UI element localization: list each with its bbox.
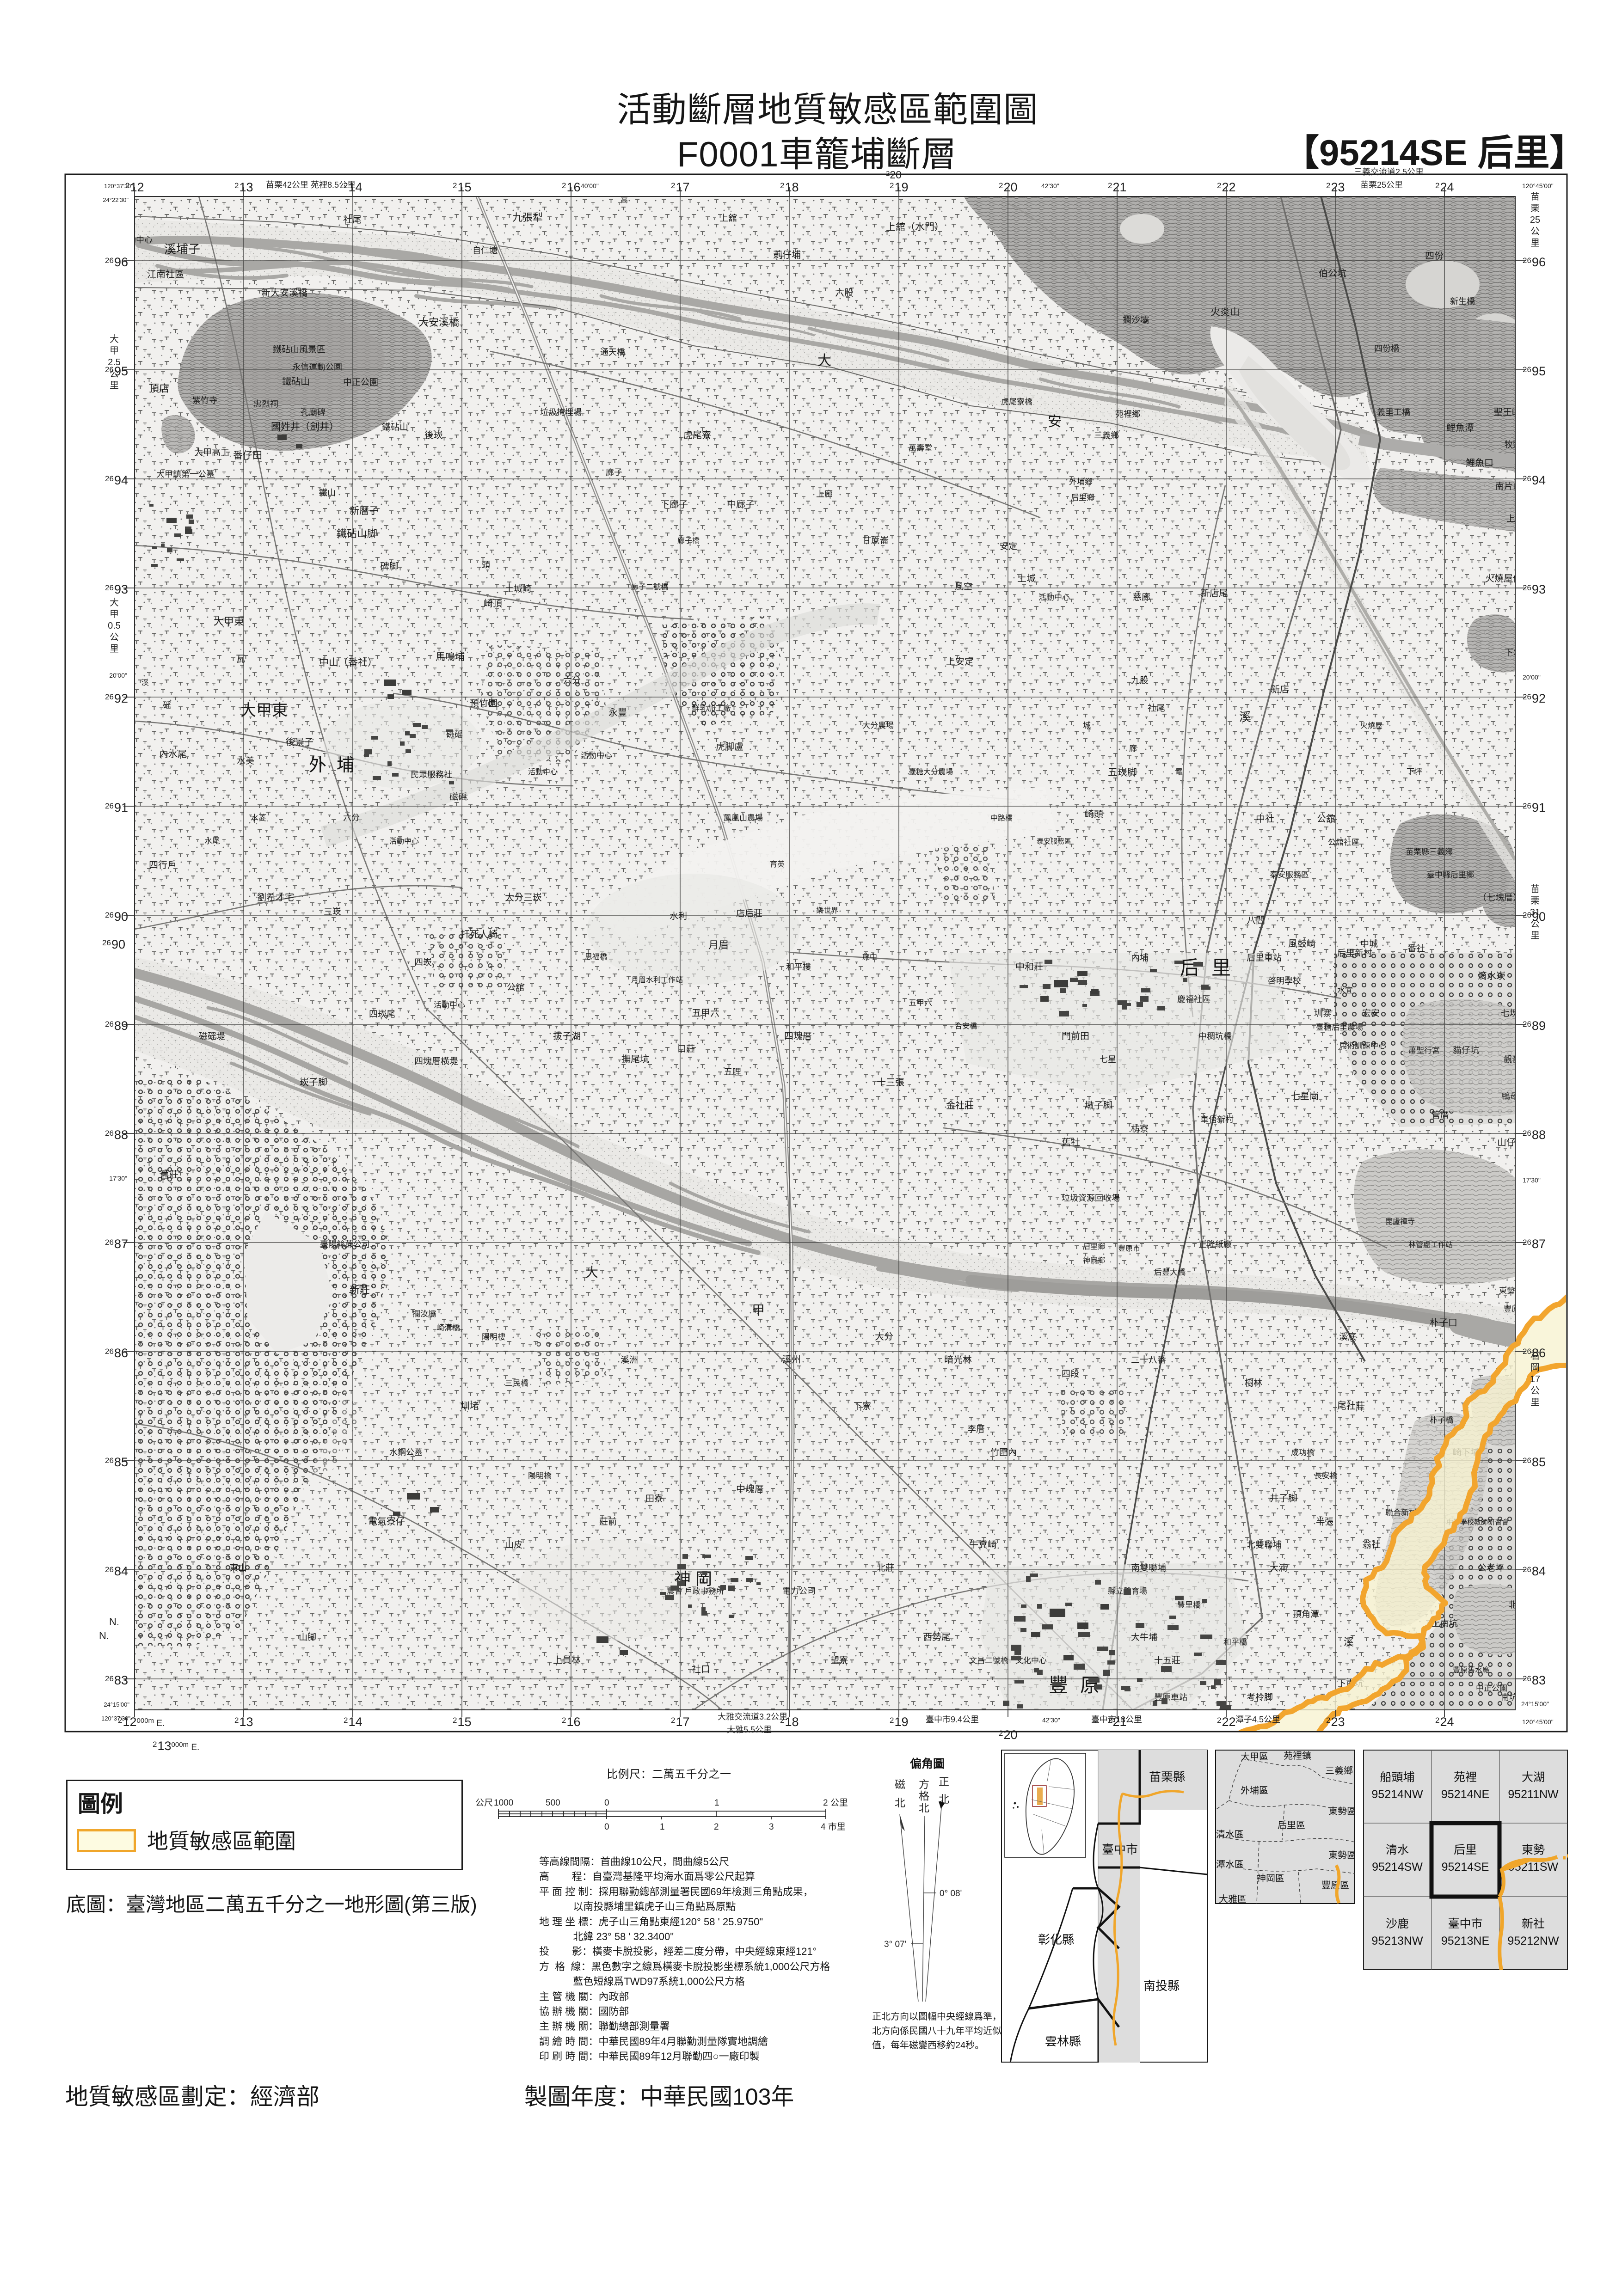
svg-text:1000: 1000 <box>494 1798 513 1808</box>
svg-text:撫尾坑: 撫尾坑 <box>621 1054 649 1065</box>
svg-text:林管處工作站: 林管處工作站 <box>1408 1241 1453 1249</box>
svg-text:自仁塘: 自仁塘 <box>473 246 498 255</box>
svg-text:大雅區: 大雅區 <box>1219 1894 1247 1904</box>
svg-text:馬鳴埔: 馬鳴埔 <box>436 652 465 662</box>
svg-text:2686: 2686 <box>105 1346 128 1360</box>
svg-text:磁: 磁 <box>895 1778 905 1790</box>
svg-text:合安橋: 合安橋 <box>955 1022 977 1030</box>
svg-text:莿仔埔: 莿仔埔 <box>773 250 801 260</box>
svg-text:水尾: 水尾 <box>204 837 220 845</box>
svg-text:舊社: 舊社 <box>1062 1137 1080 1148</box>
svg-text:公老坪: 公老坪 <box>1478 1563 1504 1573</box>
svg-text:水宜: 水宜 <box>1337 986 1353 995</box>
svg-text:臺中市: 臺中市 <box>1448 1917 1482 1930</box>
svg-text:孔廟碑: 孔廟碑 <box>301 408 326 417</box>
svg-text:四行戶: 四行戶 <box>149 860 177 870</box>
svg-text:三義鄉: 三義鄉 <box>1094 431 1119 440</box>
svg-text:西勢尾: 西勢尾 <box>923 1632 951 1642</box>
svg-text:育英: 育英 <box>770 860 785 869</box>
svg-text:豐原區: 豐原區 <box>1321 1880 1349 1891</box>
svg-text:溪: 溪 <box>1344 1636 1354 1648</box>
svg-text:店后莊: 店后莊 <box>736 908 762 918</box>
svg-text:東勢區: 東勢區 <box>1328 1850 1355 1861</box>
svg-text:后里車站: 后里車站 <box>1247 953 1282 963</box>
svg-text:望寮: 望寮 <box>830 1655 848 1665</box>
svg-text:220: 220 <box>886 169 902 181</box>
svg-text:火燒屋: 火燒屋 <box>1360 722 1382 730</box>
svg-text:新曆子: 新曆子 <box>350 506 379 516</box>
svg-text:五崁脚: 五崁脚 <box>1108 767 1137 778</box>
svg-text:泰安服務區: 泰安服務區 <box>1037 838 1071 845</box>
svg-text:2691: 2691 <box>1523 801 1546 814</box>
svg-text:山脚: 山脚 <box>299 1632 316 1642</box>
svg-text:上廊: 上廊 <box>816 490 833 499</box>
svg-text:竹圍內: 竹圍內 <box>990 1447 1017 1457</box>
svg-text:土城: 土城 <box>1017 573 1036 584</box>
svg-text:2689: 2689 <box>1523 1019 1546 1033</box>
svg-text:后豐大橋: 后豐大橋 <box>1154 1268 1186 1277</box>
svg-text:2687: 2687 <box>105 1237 128 1251</box>
svg-text:扞死人崎: 扞死人崎 <box>461 929 498 940</box>
svg-text:中廊子: 中廊子 <box>727 499 755 510</box>
svg-text:大雅交流道3.2公里: 大雅交流道3.2公里 <box>718 1712 787 1721</box>
svg-text:北: 北 <box>919 1802 929 1814</box>
svg-text:苑裡鄉: 苑裡鄉 <box>1115 410 1140 419</box>
svg-text:95214SE: 95214SE <box>1442 1861 1489 1874</box>
svg-text:文昌二號橋: 文昌二號橋 <box>969 1656 1008 1665</box>
svg-text:0: 0 <box>604 1798 609 1808</box>
svg-text:水鋼公墓: 水鋼公墓 <box>389 1448 423 1457</box>
svg-text:溪: 溪 <box>141 679 149 687</box>
svg-text:劉希才宅: 劉希才宅 <box>257 892 294 903</box>
svg-text:1: 1 <box>660 1822 665 1832</box>
svg-text:公尺: 公尺 <box>475 1798 493 1808</box>
svg-text:六分: 六分 <box>563 675 581 686</box>
svg-text:苗栗25公里: 苗栗25公里 <box>1530 191 1540 248</box>
svg-text:和平橋: 和平橋 <box>1223 1638 1247 1647</box>
svg-text:中正公園: 中正公園 <box>343 377 378 387</box>
svg-text:溪洲: 溪洲 <box>621 1355 638 1365</box>
svg-text:苗栗縣: 苗栗縣 <box>1149 1770 1185 1784</box>
svg-text:神岡區: 神岡區 <box>1257 1873 1284 1884</box>
svg-text:風鼓崎: 風鼓崎 <box>1288 938 1316 949</box>
svg-text:預竹園: 預竹園 <box>470 698 498 709</box>
svg-text:大甲2.5公里: 大甲2.5公里 <box>108 334 121 391</box>
svg-text:2692: 2692 <box>1523 692 1546 705</box>
svg-text:方: 方 <box>919 1778 929 1790</box>
svg-text:南投縣: 南投縣 <box>1143 1979 1180 1993</box>
svg-text:社口: 社口 <box>692 1664 710 1675</box>
svg-text:24°15'00": 24°15'00" <box>104 1701 129 1708</box>
svg-text:95213NW: 95213NW <box>1371 1935 1423 1947</box>
svg-text:42'30": 42'30" <box>1042 1716 1060 1724</box>
svg-text:鐵砧山: 鐵砧山 <box>382 422 408 432</box>
svg-text:朴子口: 朴子口 <box>1430 1317 1457 1328</box>
svg-text:苗栗25公里: 苗栗25公里 <box>1360 180 1403 190</box>
svg-text:3: 3 <box>769 1822 774 1832</box>
svg-text:新社: 新社 <box>1522 1917 1545 1930</box>
svg-text:下寮: 下寮 <box>854 1401 871 1411</box>
svg-text:東勢鎮: 東勢鎮 <box>1499 1286 1523 1295</box>
svg-text:金社莊: 金社莊 <box>946 1100 974 1111</box>
svg-text:新莊: 新莊 <box>350 1284 370 1296</box>
svg-text:2683: 2683 <box>1523 1673 1546 1687</box>
svg-text:暗光林: 暗光林 <box>944 1354 972 1365</box>
svg-text:溪州: 溪州 <box>782 1354 801 1365</box>
svg-text:後景子: 後景子 <box>286 737 313 747</box>
svg-text:紫竹寺: 紫竹寺 <box>192 396 217 405</box>
svg-text:枋寮: 枋寮 <box>1131 1124 1149 1134</box>
svg-text:拔子湖: 拔子湖 <box>553 1031 581 1041</box>
svg-text:北: 北 <box>895 1797 905 1809</box>
svg-text:頭: 頭 <box>482 560 490 569</box>
svg-text:活動中心: 活動中心 <box>389 837 419 845</box>
svg-text:中稠坑橋: 中稠坑橋 <box>1198 1032 1232 1041</box>
svg-text:廊子橋: 廊子橋 <box>677 537 700 545</box>
svg-text:1: 1 <box>714 1798 719 1808</box>
svg-text:中正公園: 中正公園 <box>1476 1684 1507 1693</box>
svg-text:95214SW: 95214SW <box>1372 1861 1423 1874</box>
svg-text:鐵砧山: 鐵砧山 <box>282 376 310 387</box>
svg-text:95214NE: 95214NE <box>1441 1788 1489 1801</box>
svg-text:臺中市13公里: 臺中市13公里 <box>1091 1715 1142 1724</box>
svg-text:豐里橋: 豐里橋 <box>1177 1601 1201 1610</box>
svg-text:2 公里: 2 公里 <box>823 1798 848 1808</box>
svg-text:二十八番: 二十八番 <box>1131 1355 1166 1365</box>
svg-text:后里: 后里 <box>1180 957 1243 979</box>
svg-text:電: 電 <box>1175 768 1183 776</box>
svg-text:大甲區: 大甲區 <box>1241 1751 1268 1762</box>
svg-text:大分三崁: 大分三崁 <box>505 892 542 903</box>
svg-text:四段: 四段 <box>1062 1369 1079 1379</box>
svg-text:甘蔗崙: 甘蔗崙 <box>862 535 889 545</box>
svg-text:永豐: 永豐 <box>608 707 627 718</box>
svg-text:貓仔坑: 貓仔坑 <box>1453 1045 1479 1055</box>
svg-text:石岡17公里: 石岡17公里 <box>1530 1351 1540 1408</box>
svg-text:大分農場: 大分農場 <box>862 721 894 730</box>
svg-text:活動中心: 活動中心 <box>581 751 612 760</box>
svg-text:通天橋: 通天橋 <box>600 348 625 357</box>
svg-text:毘盧禪寺: 毘盧禪寺 <box>1385 1218 1415 1226</box>
svg-text:攔沙壩: 攔沙壩 <box>1123 315 1149 325</box>
svg-text:正: 正 <box>939 1776 949 1788</box>
svg-text:20'00": 20'00" <box>109 672 127 679</box>
svg-text:公舘: 公舘 <box>1317 814 1335 824</box>
svg-text:2690: 2690 <box>105 910 128 924</box>
svg-text:蕭聖行宮: 蕭聖行宮 <box>1408 1046 1440 1055</box>
svg-text:120°45'00": 120°45'00" <box>1522 1718 1554 1726</box>
svg-text:垃圾掩埋場: 垃圾掩埋場 <box>540 408 582 417</box>
svg-text:2685: 2685 <box>1523 1455 1546 1469</box>
svg-text:95211NW: 95211NW <box>1508 1788 1559 1801</box>
svg-text:鯉魚口: 鯉魚口 <box>1466 458 1493 468</box>
svg-text:臺中市9.4公里: 臺中市9.4公里 <box>926 1715 979 1724</box>
svg-text:大雅5.5公里: 大雅5.5公里 <box>727 1725 772 1734</box>
svg-text:上安定: 上安定 <box>946 656 974 667</box>
svg-text:鯉魚潭: 鯉魚潭 <box>1446 422 1474 433</box>
svg-text:翁社: 翁社 <box>1362 1539 1381 1550</box>
svg-text:啓明學校: 啓明學校 <box>1268 976 1301 986</box>
svg-text:廊子二號橋: 廊子二號橋 <box>631 583 668 591</box>
svg-text:95214NW: 95214NW <box>1371 1788 1423 1801</box>
svg-text:宏安: 宏安 <box>1362 1008 1380 1018</box>
svg-text:2688: 2688 <box>1523 1128 1546 1142</box>
svg-text:門前田: 門前田 <box>1062 1031 1089 1041</box>
svg-text:月眉水利工作站: 月眉水利工作站 <box>631 976 683 984</box>
svg-text:中社: 中社 <box>1256 814 1274 824</box>
svg-text:大甲東: 大甲東 <box>214 616 244 627</box>
svg-text:廊子: 廊子 <box>606 468 622 477</box>
svg-text:忠烈祠: 忠烈祠 <box>253 399 278 409</box>
svg-text:五甲六: 五甲六 <box>909 998 932 1007</box>
svg-text:后里鄉: 后里鄉 <box>1071 493 1094 502</box>
svg-text:七星: 七星 <box>1100 1055 1116 1064</box>
svg-text:24°22'30": 24°22'30" <box>103 196 129 203</box>
svg-text:碑脚: 碑脚 <box>380 561 399 572</box>
svg-text:苗栗42公里 苑裡8.5公里: 苗栗42公里 苑裡8.5公里 <box>266 180 356 190</box>
svg-text:考柃脚: 考柃脚 <box>1247 1692 1273 1702</box>
svg-text:下廊子: 下廊子 <box>660 499 688 510</box>
svg-text:潭水區: 潭水區 <box>1216 1859 1244 1870</box>
svg-text:電氣寮仔: 電氣寮仔 <box>368 1516 405 1527</box>
svg-text:17'30": 17'30" <box>1523 1176 1541 1184</box>
svg-text:朴子橋: 朴子橋 <box>1430 1416 1453 1425</box>
svg-text:社尾: 社尾 <box>1148 703 1165 713</box>
svg-text:井子脚: 井子脚 <box>1270 1493 1297 1504</box>
svg-text:沙鹿: 沙鹿 <box>1386 1917 1409 1930</box>
svg-text:高: 高 <box>621 196 628 204</box>
svg-text:水利: 水利 <box>670 911 687 921</box>
svg-text:慈廊: 慈廊 <box>1133 592 1150 602</box>
svg-text:內水尾: 內水尾 <box>159 749 187 759</box>
svg-text:2692: 2692 <box>105 692 128 705</box>
svg-text:苑裡: 苑裡 <box>1454 1771 1477 1784</box>
svg-text:船頭埔: 船頭埔 <box>1380 1771 1414 1784</box>
svg-text:臺中縣后里鄉: 臺中縣后里鄉 <box>1427 870 1474 879</box>
svg-text:苗栗縣三義鄉: 苗栗縣三義鄉 <box>1406 847 1453 856</box>
svg-text:中山（番社）: 中山（番社） <box>319 657 377 668</box>
svg-text:新大安溪橋: 新大安溪橋 <box>261 288 307 298</box>
svg-text:北莊: 北莊 <box>877 1563 894 1573</box>
svg-text:虎脚盧: 虎脚盧 <box>716 741 743 752</box>
svg-text:2691: 2691 <box>105 801 128 814</box>
svg-text:三民橋: 三民橋 <box>505 1379 528 1388</box>
svg-text:后里: 后里 <box>1454 1843 1477 1856</box>
svg-text:大甲高工: 大甲高工 <box>194 447 229 458</box>
svg-text:七星崗: 七星崗 <box>1291 1091 1319 1102</box>
svg-text:李厝: 李厝 <box>967 1424 985 1434</box>
svg-text:北坑巷: 北坑巷 <box>1508 1600 1535 1610</box>
svg-text:東勢: 東勢 <box>1522 1843 1545 1856</box>
svg-text:大湳: 大湳 <box>1270 1563 1287 1573</box>
svg-text:公舘社區: 公舘社區 <box>1328 838 1359 847</box>
svg-text:鐵砧山脚: 鐵砧山脚 <box>337 528 377 539</box>
svg-text:2694: 2694 <box>1523 473 1546 487</box>
svg-text:瓦: 瓦 <box>236 654 245 664</box>
svg-text:施中: 施中 <box>862 953 877 961</box>
svg-text:2695: 2695 <box>1523 364 1546 378</box>
svg-text:崎頭: 崎頭 <box>1085 809 1103 820</box>
svg-text:成功橋: 成功橋 <box>1291 1448 1315 1457</box>
svg-text:和平樓: 和平樓 <box>786 962 811 972</box>
svg-text:陽明樓: 陽明樓 <box>482 1333 505 1341</box>
svg-text:後崁: 後崁 <box>424 430 443 441</box>
svg-text:17'30": 17'30" <box>109 1175 127 1182</box>
svg-text:管厝: 管厝 <box>1432 1110 1449 1120</box>
svg-text:陽明橋: 陽明橋 <box>528 1471 552 1480</box>
svg-text:大湖: 大湖 <box>1522 1771 1545 1784</box>
svg-text:臺糖后里農場: 臺糖后里農場 <box>1316 1023 1363 1032</box>
svg-text:豐原舊水廠: 豐原舊水廠 <box>1453 1665 1490 1674</box>
svg-text:番社: 番社 <box>1407 943 1425 954</box>
svg-text:四塊厝橫堤: 四塊厝橫堤 <box>414 1056 458 1066</box>
svg-text:213000m E.: 213000m E. <box>153 1739 199 1753</box>
svg-text:崎頂: 崎頂 <box>484 598 502 609</box>
svg-text:九張犁: 九張犁 <box>512 212 543 223</box>
svg-text:山仔頭: 山仔頭 <box>1497 1137 1525 1148</box>
svg-text:四份: 四份 <box>1425 251 1444 261</box>
svg-text:三義鄉: 三義鄉 <box>1325 1765 1353 1776</box>
svg-text:長安橋: 長安橋 <box>1314 1471 1338 1480</box>
svg-text:神岡鄉: 神岡鄉 <box>1083 1256 1105 1265</box>
svg-text:大: 大 <box>585 1265 598 1280</box>
svg-text:彰化縣: 彰化縣 <box>1038 1933 1074 1947</box>
svg-text:口莊: 口莊 <box>677 1044 695 1054</box>
svg-text:江南社區: 江南社區 <box>147 269 184 280</box>
svg-text:崎溝橋: 崎溝橋 <box>436 1323 460 1332</box>
svg-text:十五莊: 十五莊 <box>1154 1655 1180 1665</box>
svg-text:牧頭山: 牧頭山 <box>1505 440 1530 449</box>
svg-text:正隆紙廠: 正隆紙廠 <box>1198 1239 1232 1249</box>
svg-text:崁子脚: 崁子脚 <box>300 1077 327 1088</box>
svg-text:新店尾: 新店尾 <box>1200 588 1228 599</box>
svg-text:番仔田: 番仔田 <box>233 450 262 461</box>
svg-text:月眉: 月眉 <box>708 939 729 951</box>
svg-text:活動中心: 活動中心 <box>528 768 558 776</box>
svg-text:2693: 2693 <box>105 582 128 596</box>
svg-text:慶福社區: 慶福社區 <box>1177 995 1210 1004</box>
svg-text:大: 大 <box>817 353 831 368</box>
svg-text:甲: 甲 <box>752 1303 765 1317</box>
svg-text:下坪: 下坪 <box>1505 648 1522 658</box>
svg-text:土城崎: 土城崎 <box>505 584 531 594</box>
svg-text:中城: 中城 <box>1360 939 1378 949</box>
svg-text:磁磘: 磁磘 <box>449 792 467 802</box>
svg-text:東勢區: 東勢區 <box>1328 1806 1355 1817</box>
svg-text:舊莊: 舊莊 <box>160 1169 178 1180</box>
svg-text:水菱: 水菱 <box>251 814 266 822</box>
svg-text:中塊厝: 中塊厝 <box>736 1484 764 1494</box>
svg-text:六股: 六股 <box>835 288 854 298</box>
svg-text:城: 城 <box>1083 721 1091 730</box>
svg-text:豐原車站: 豐原車站 <box>1154 1693 1187 1702</box>
svg-text:伯公坑: 伯公坑 <box>1319 268 1346 279</box>
svg-text:火燒屋仔: 火燒屋仔 <box>1485 573 1522 584</box>
svg-text:泰安服務區: 泰安服務區 <box>1270 870 1309 879</box>
svg-text:田寮: 田寮 <box>645 1494 663 1504</box>
svg-text:活動中心: 活動中心 <box>119 235 153 245</box>
svg-text:車俉新村: 車俉新村 <box>1200 1115 1234 1124</box>
svg-text:鴨母坑: 鴨母坑 <box>1502 1092 1527 1101</box>
svg-text:溪: 溪 <box>1239 710 1251 724</box>
svg-text:萬壽堂: 萬壽堂 <box>909 444 932 453</box>
svg-text:2685: 2685 <box>105 1455 128 1469</box>
svg-text:外埔鄉: 外埔鄉 <box>1069 478 1093 486</box>
svg-text:雲林縣: 雲林縣 <box>1045 2034 1081 2048</box>
svg-text:莊前: 莊前 <box>599 1517 617 1527</box>
svg-text:攔汝壩: 攔汝壩 <box>412 1310 436 1318</box>
svg-text:后里區: 后里區 <box>1278 1820 1305 1831</box>
svg-text:四塊厝: 四塊厝 <box>784 1031 812 1041</box>
svg-text:中和莊: 中和莊 <box>1015 961 1043 972</box>
svg-text:3° 07': 3° 07' <box>884 1940 906 1949</box>
svg-text:N.: N. <box>99 1630 109 1641</box>
svg-text:圳寨: 圳寨 <box>1314 1008 1332 1018</box>
svg-text:五甲六: 五甲六 <box>692 1008 719 1018</box>
svg-text:虎尾寮: 虎尾寮 <box>683 430 711 441</box>
svg-text:電力公司: 電力公司 <box>782 1586 816 1596</box>
svg-text:永信運動公園: 永信運動公園 <box>292 362 342 372</box>
svg-text:2687: 2687 <box>1523 1237 1546 1251</box>
svg-text:大甲東: 大甲東 <box>240 702 288 719</box>
svg-text:清水區: 清水區 <box>1216 1829 1244 1840</box>
svg-text:N.: N. <box>109 1616 119 1628</box>
svg-text:95212NW: 95212NW <box>1507 1935 1559 1947</box>
svg-text:2683: 2683 <box>105 1673 128 1687</box>
svg-text:外埔: 外埔 <box>309 756 364 775</box>
svg-text:樹林: 樹林 <box>1245 1378 1262 1388</box>
svg-text:潭子4.5公里: 潭子4.5公里 <box>1235 1715 1280 1724</box>
svg-text:0: 0 <box>604 1822 609 1832</box>
svg-text:大甲0.5公里: 大甲0.5公里 <box>108 597 121 654</box>
svg-text:鮮乳加工廠: 鮮乳加工廠 <box>692 704 731 713</box>
svg-text:四崁尾: 四崁尾 <box>369 1009 395 1019</box>
svg-text:大分: 大分 <box>875 1331 893 1342</box>
svg-text:新店: 新店 <box>1271 684 1289 695</box>
svg-text:上舘（水門）: 上舘（水門） <box>886 222 944 233</box>
svg-text:安: 安 <box>1048 414 1062 429</box>
svg-text:六分: 六分 <box>343 813 360 822</box>
svg-text:八閭: 八閭 <box>1247 916 1265 926</box>
svg-text:三崁: 三崁 <box>324 906 341 917</box>
svg-text:大安溪橋: 大安溪橋 <box>418 317 459 328</box>
svg-text:后里新村: 后里新村 <box>1337 948 1372 958</box>
svg-text:廊: 廊 <box>1129 744 1137 753</box>
svg-text:220: 220 <box>999 1728 1018 1742</box>
svg-text:0° 08': 0° 08' <box>940 1889 962 1898</box>
svg-text:三義交流道2.5公里: 三義交流道2.5公里 <box>1354 167 1424 177</box>
svg-text:墩子脚: 墩子脚 <box>1085 1100 1112 1111</box>
svg-text:鐵砧山風景區: 鐵砧山風景區 <box>273 344 326 355</box>
svg-text:212000m E.: 212000m E. <box>118 1715 165 1729</box>
svg-text:頂角潭: 頂角潭 <box>1293 1609 1319 1619</box>
svg-text:九股: 九股 <box>1131 675 1149 686</box>
svg-text:南雙聯埔: 南雙聯埔 <box>1131 1563 1166 1573</box>
svg-text:40'00": 40'00" <box>581 182 599 190</box>
svg-text:社尾: 社尾 <box>343 214 362 225</box>
svg-text:大甲鎮第一公墓: 大甲鎮第一公墓 <box>156 470 215 479</box>
svg-text:十三張: 十三張 <box>877 1077 904 1088</box>
svg-text:2696: 2696 <box>105 255 128 269</box>
svg-text:聖王崎下: 聖王崎下 <box>1493 407 1530 417</box>
svg-text:東山: 東山 <box>229 1563 247 1573</box>
svg-text:活動中心: 活動中心 <box>434 1001 465 1010</box>
svg-text:山皮: 山皮 <box>505 1540 522 1550</box>
svg-text:四崁: 四崁 <box>414 957 432 967</box>
svg-text:尾社莊: 尾社莊 <box>1337 1401 1365 1411</box>
svg-text:大牛埔: 大牛埔 <box>1131 1632 1157 1642</box>
svg-text:120°45'00": 120°45'00" <box>1522 182 1554 190</box>
